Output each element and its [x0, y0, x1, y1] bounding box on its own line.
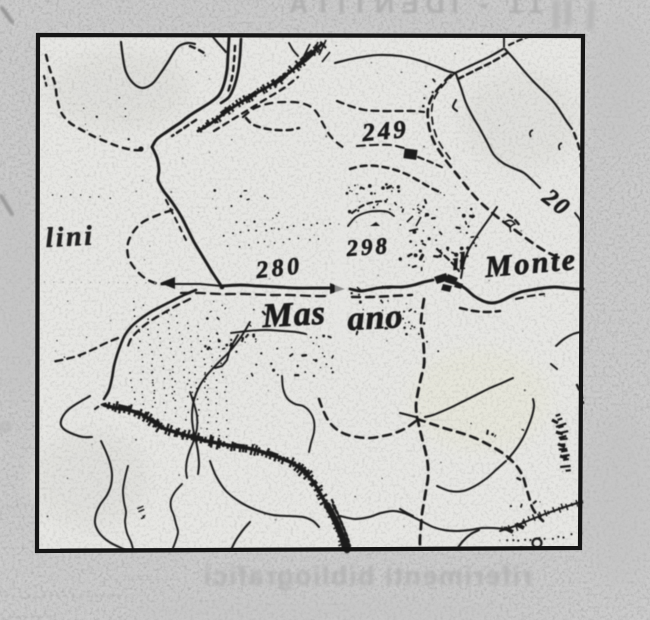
svg-text:11 - IDENTITÀ: 11 - IDENTITÀ [282, 0, 544, 19]
svg-text:298: 298 [345, 233, 391, 261]
svg-text:ano: ano [346, 298, 404, 338]
svg-text:249: 249 [360, 116, 410, 147]
svg-text:riferimenti bibliografici: riferimenti bibliografici [202, 561, 532, 591]
svg-text:olo: olo [0, 415, 12, 437]
svg-text:280: 280 [254, 253, 304, 284]
svg-text:lini: lini [45, 220, 95, 254]
svg-text:Mas: Mas [260, 295, 326, 335]
